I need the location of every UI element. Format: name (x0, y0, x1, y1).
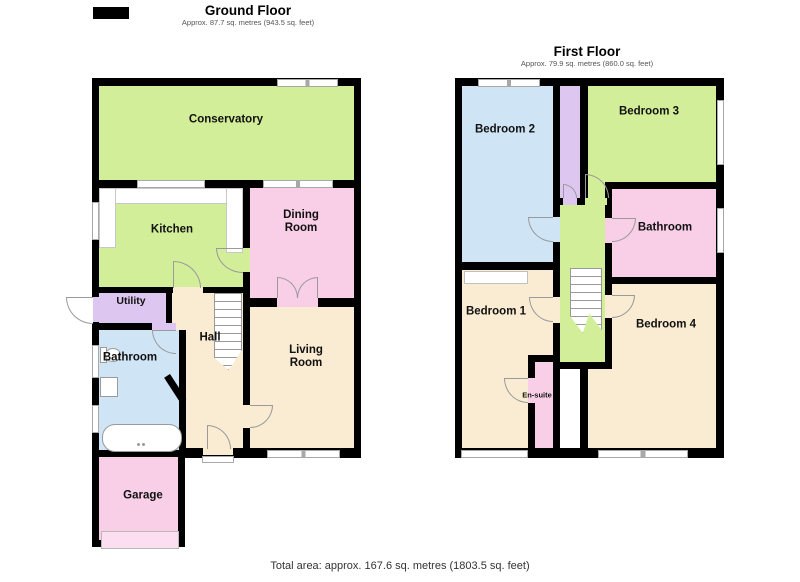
window (717, 208, 724, 253)
door-opening (243, 405, 250, 428)
door-opening (605, 218, 612, 243)
window (277, 79, 338, 87)
room-bedroom-3 (588, 86, 716, 182)
kitchen-counter (99, 188, 116, 248)
ground-floor-subtitle: Approx. 87.7 sq. metres (943.5 sq. feet) (182, 18, 314, 27)
window (598, 450, 688, 458)
window (92, 345, 99, 378)
tap-dot (137, 443, 140, 446)
room-cupboard (560, 86, 580, 198)
label-bedroom-2: Bedroom 2 (475, 123, 535, 136)
window (92, 202, 99, 240)
label-hall: Hall (199, 331, 220, 344)
window (478, 79, 540, 87)
door-opening (277, 298, 318, 307)
wall-segment (528, 362, 535, 448)
label-kitchen: Kitchen (151, 223, 193, 236)
kitchen-counter (99, 188, 243, 204)
cupboard-void (560, 369, 580, 448)
wardrobe (464, 271, 528, 284)
door-opening (605, 295, 612, 318)
sink (100, 377, 118, 397)
window (461, 450, 528, 458)
wall-segment (528, 355, 560, 362)
window (267, 450, 340, 458)
room-bedroom-4 (588, 369, 612, 448)
first-floor-title: First Floor (554, 44, 621, 59)
window (92, 405, 99, 433)
door-opening (553, 297, 560, 323)
first-floor-subtitle: Approx. 79.9 sq. metres (860.0 sq. feet) (521, 59, 653, 68)
door-opening (92, 297, 99, 322)
bathtub (102, 424, 182, 452)
window (717, 100, 724, 165)
total-area-text: Total area: approx. 167.6 sq. metres (18… (270, 560, 529, 572)
door-opening (563, 198, 577, 205)
label-en-suite: En-suite (522, 392, 552, 401)
door-arc (66, 297, 93, 324)
door-opening (152, 323, 176, 330)
door-opening (553, 217, 560, 242)
ground-floor-title: Ground Floor (205, 3, 291, 18)
window (263, 180, 333, 188)
label-garage: Garage (123, 489, 163, 502)
room-conservatory (99, 86, 354, 180)
label-bedroom-1: Bedroom 1 (466, 305, 526, 318)
door-opening (585, 198, 607, 205)
label-bathroom-gf: Bathroom (103, 351, 157, 364)
label-living-room: Living Room (275, 344, 337, 370)
window (137, 180, 205, 188)
wall-segment (580, 369, 588, 448)
tap-dot (142, 443, 145, 446)
room-en-suite (535, 362, 553, 448)
label-utility: Utility (116, 295, 145, 307)
room-dining (250, 188, 354, 298)
door-opening (243, 248, 250, 272)
label-bedroom-4: Bedroom 4 (636, 318, 696, 331)
label-bathroom-ff: Bathroom (638, 221, 692, 234)
label-bedroom-3: Bedroom 3 (619, 105, 679, 118)
label-dining-room: Dining Room (270, 209, 332, 235)
garage-door (101, 531, 179, 549)
room-living (250, 307, 354, 448)
kitchen-counter (226, 188, 243, 253)
plan-mark (93, 7, 129, 19)
front-door-step (202, 456, 234, 463)
door-opening (203, 448, 233, 455)
floorplan-canvas: Ground Floor Approx. 87.7 sq. metres (94… (0, 0, 800, 582)
label-conservatory: Conservatory (189, 113, 263, 126)
